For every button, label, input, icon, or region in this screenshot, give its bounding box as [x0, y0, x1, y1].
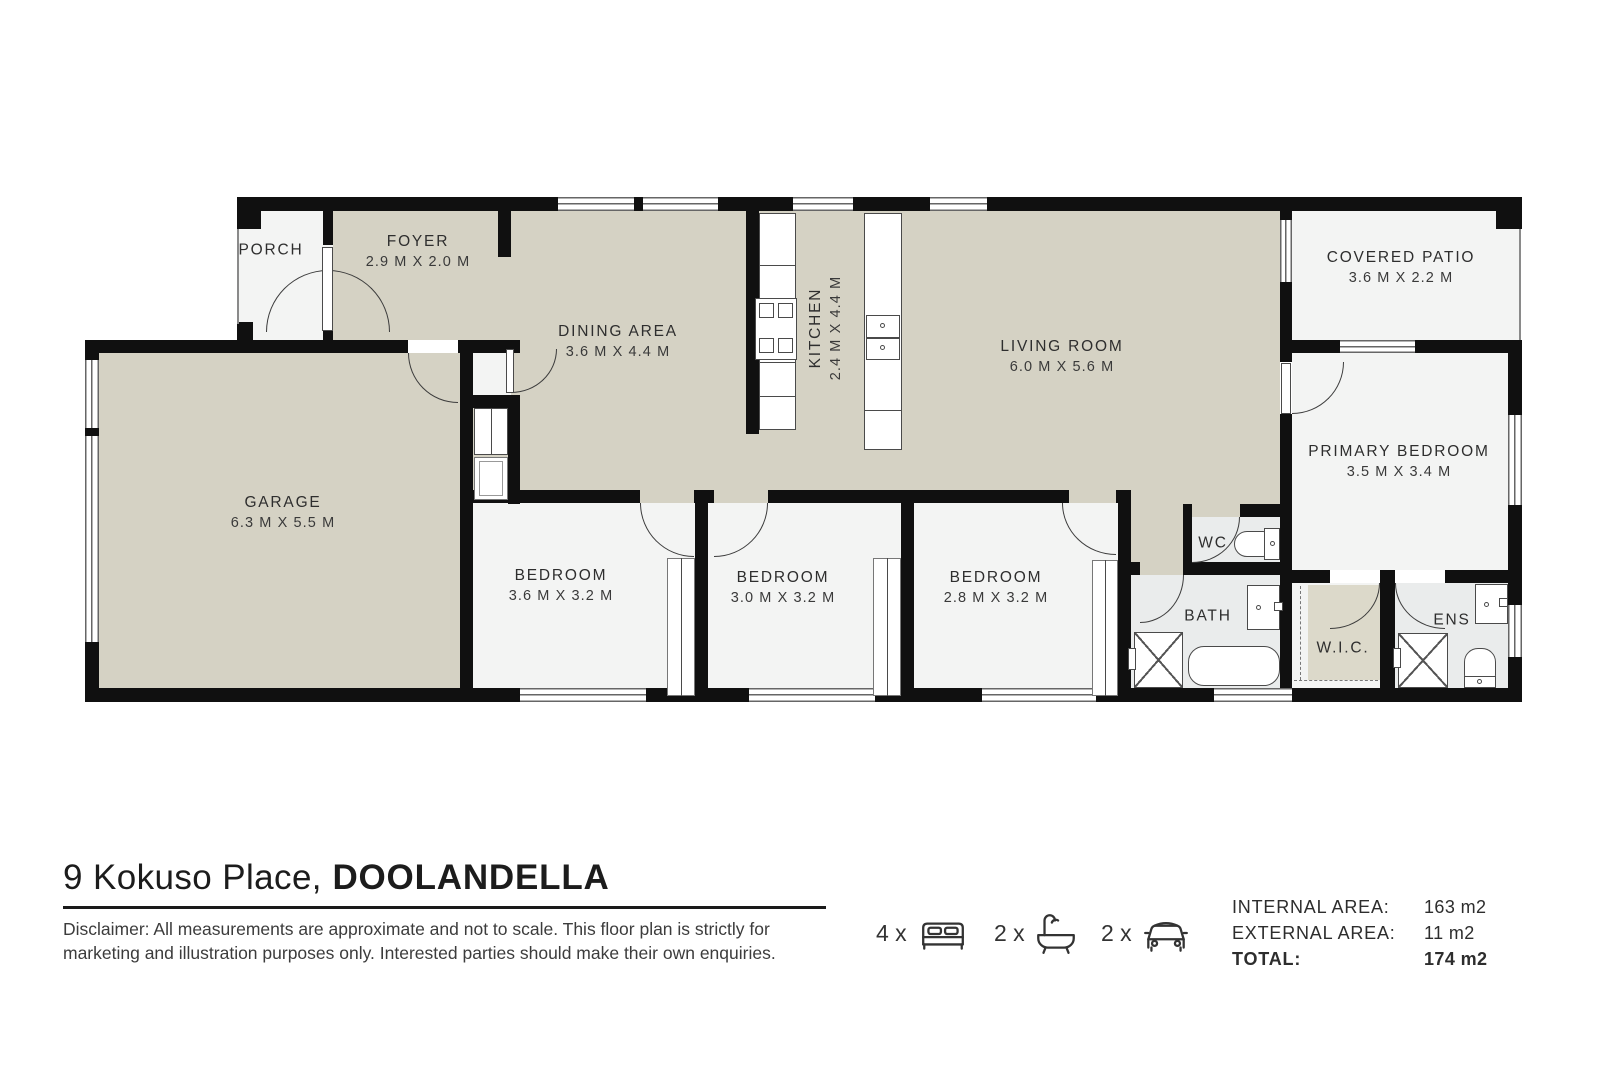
wall	[853, 197, 930, 211]
room-label-bedroom-1: BEDROOM 3.6 M X 3.2 M	[509, 565, 614, 607]
wic-shelf-line	[1300, 586, 1301, 680]
stove-burner	[778, 338, 793, 353]
wall	[460, 353, 473, 702]
stat-external-value: 11 m2	[1424, 923, 1475, 944]
wall	[1380, 570, 1395, 583]
wardrobe-divider	[887, 558, 888, 696]
window	[643, 197, 718, 211]
stat-total-value: 174 m2	[1424, 949, 1487, 970]
wall	[634, 197, 643, 211]
window	[1214, 688, 1292, 702]
stat-internal-label: INTERNAL AREA:	[1232, 897, 1390, 918]
stat-total-label: TOTAL:	[1232, 949, 1301, 970]
room-label-porch: PORCH	[239, 240, 304, 261]
counter-divider	[864, 410, 902, 411]
stat-internal-value: 163 m2	[1424, 897, 1486, 918]
stove-burner	[759, 303, 774, 318]
bedroom-count: 4 x	[876, 920, 907, 947]
flush-button	[1270, 541, 1275, 546]
faucet-dot	[880, 345, 885, 350]
room-label-wic: W.I.C.	[1317, 638, 1370, 659]
address-suburb: DOOLANDELLA	[322, 858, 610, 897]
room-label-primary-bedroom: PRIMARY BEDROOM 3.5 M X 3.4 M	[1308, 441, 1489, 483]
porch-pillar	[237, 197, 261, 229]
wall	[85, 340, 408, 353]
wall	[1280, 340, 1292, 362]
stat-external-label: EXTERNAL AREA:	[1232, 923, 1396, 944]
patio-pillar	[1496, 197, 1522, 229]
counter-divider	[759, 265, 796, 266]
stove-burner	[778, 303, 793, 318]
wall	[768, 490, 1069, 503]
bathtub-icon	[1032, 910, 1080, 961]
wall	[508, 395, 520, 504]
wall	[1118, 490, 1131, 702]
floorplan-page: PORCH FOYER 2.9 M X 2.0 M DINING AREA 3.…	[0, 0, 1620, 1080]
disclaimer-text: Disclaimer: All measurements are approxi…	[63, 917, 831, 965]
wall	[987, 197, 1522, 211]
room-label-ens: ENS	[1433, 610, 1470, 631]
room-label-kitchen: KITCHEN 2.4 M X 4.4 M	[805, 276, 847, 381]
room-label-bedroom-2: BEDROOM 3.0 M X 3.2 M	[731, 567, 836, 609]
flush-button	[1477, 679, 1482, 684]
wall	[901, 503, 914, 702]
stove-burner	[759, 338, 774, 353]
wall	[85, 688, 520, 702]
counter-divider	[759, 362, 796, 363]
faucet-dot	[1484, 602, 1489, 607]
window	[749, 688, 875, 702]
soap-dish	[1499, 598, 1508, 607]
soap-dish	[1274, 602, 1283, 611]
door-leaf	[322, 247, 333, 331]
wall	[85, 642, 99, 702]
room-label-dining: DINING AREA 3.6 M X 4.4 M	[558, 321, 678, 363]
patio-open-edge	[1519, 229, 1521, 340]
car-count: 2 x	[1101, 920, 1132, 947]
room-label-garage: GARAGE 6.3 M X 5.5 M	[231, 492, 336, 534]
wall	[1280, 414, 1292, 583]
shower-fixture	[1393, 648, 1401, 668]
wardrobe-divider	[1105, 560, 1106, 696]
wall	[323, 211, 333, 245]
window	[1508, 415, 1522, 505]
faucet-dot	[1256, 605, 1261, 610]
window	[1280, 220, 1292, 282]
wall	[1508, 657, 1522, 702]
wardrobe-divider	[681, 558, 682, 696]
window	[520, 688, 646, 702]
wall	[498, 211, 511, 257]
cupboard-divider	[491, 408, 492, 455]
room-label-living: LIVING ROOM 6.0 M X 5.6 M	[1000, 336, 1123, 378]
wall	[1415, 340, 1522, 353]
wall	[694, 490, 714, 503]
toilet-symbol	[1464, 648, 1496, 678]
wall	[1183, 562, 1292, 575]
porch-pillar	[237, 322, 253, 340]
address-title: 9 Kokuso Place, DOOLANDELLA	[63, 858, 610, 898]
address-street: 9 Kokuso Place,	[63, 858, 322, 897]
title-divider	[63, 906, 826, 909]
wall	[1183, 504, 1192, 575]
wall	[1280, 583, 1292, 702]
appliance-symbol	[479, 461, 503, 496]
window	[85, 436, 99, 642]
room-label-wc: WC	[1198, 533, 1227, 554]
wall	[718, 197, 793, 211]
window	[982, 688, 1096, 702]
wall	[85, 340, 99, 360]
room-label-bedroom-3: BEDROOM 2.8 M X 3.2 M	[944, 567, 1049, 609]
bed-icon	[918, 913, 968, 960]
room-label-bath: BATH	[1184, 606, 1231, 627]
bathroom-count: 2 x	[994, 920, 1025, 947]
room-label-patio: COVERED PATIO 3.6 M X 2.2 M	[1327, 247, 1476, 289]
window	[1508, 605, 1522, 657]
wall	[1280, 197, 1292, 220]
door-leaf	[1281, 363, 1291, 414]
faucet-dot	[880, 323, 885, 328]
sliding-door	[1340, 340, 1415, 353]
window	[930, 197, 987, 211]
wall	[85, 428, 99, 436]
wall	[1380, 583, 1395, 702]
window	[558, 197, 634, 211]
toilet-symbol	[1234, 531, 1266, 557]
wall	[1508, 505, 1522, 605]
wic-shelf-line	[1294, 680, 1378, 681]
wall	[1131, 562, 1140, 575]
shower-symbol	[1398, 633, 1448, 688]
wall	[1280, 282, 1292, 340]
window	[793, 197, 853, 211]
bathtub-symbol	[1188, 646, 1280, 686]
car-icon	[1140, 911, 1192, 960]
room-label-foyer: FOYER 2.9 M X 2.0 M	[366, 231, 471, 273]
wall	[237, 197, 558, 211]
wall	[1508, 340, 1522, 415]
door-leaf	[506, 349, 514, 393]
shower-fixture	[1128, 648, 1136, 670]
wall	[1292, 688, 1522, 702]
wall	[695, 503, 708, 702]
counter-divider	[759, 396, 796, 397]
shower-symbol	[1134, 632, 1183, 688]
window	[85, 360, 99, 428]
